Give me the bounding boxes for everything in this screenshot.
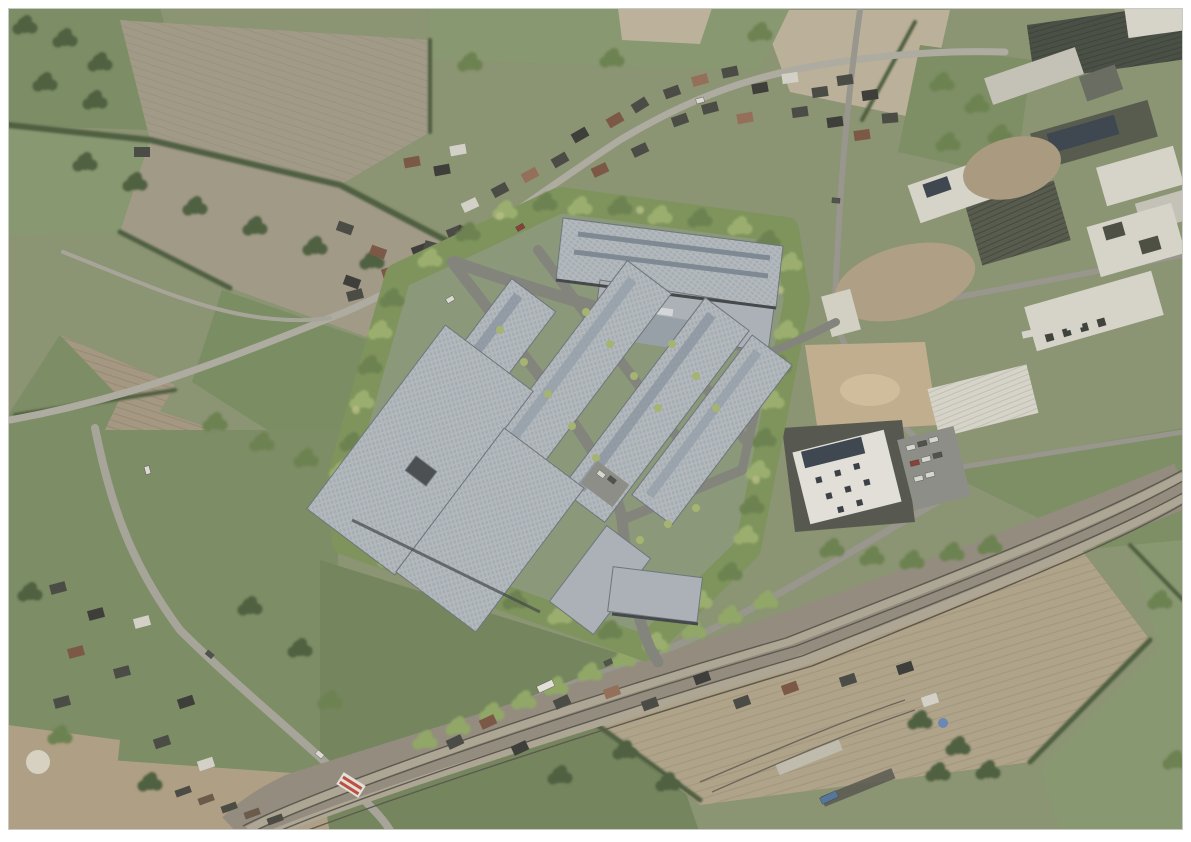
- aerial-photo-figure: [0, 0, 1191, 842]
- aerial-photo-canvas: [0, 0, 1191, 842]
- photo-tone-overlay: [8, 8, 1183, 830]
